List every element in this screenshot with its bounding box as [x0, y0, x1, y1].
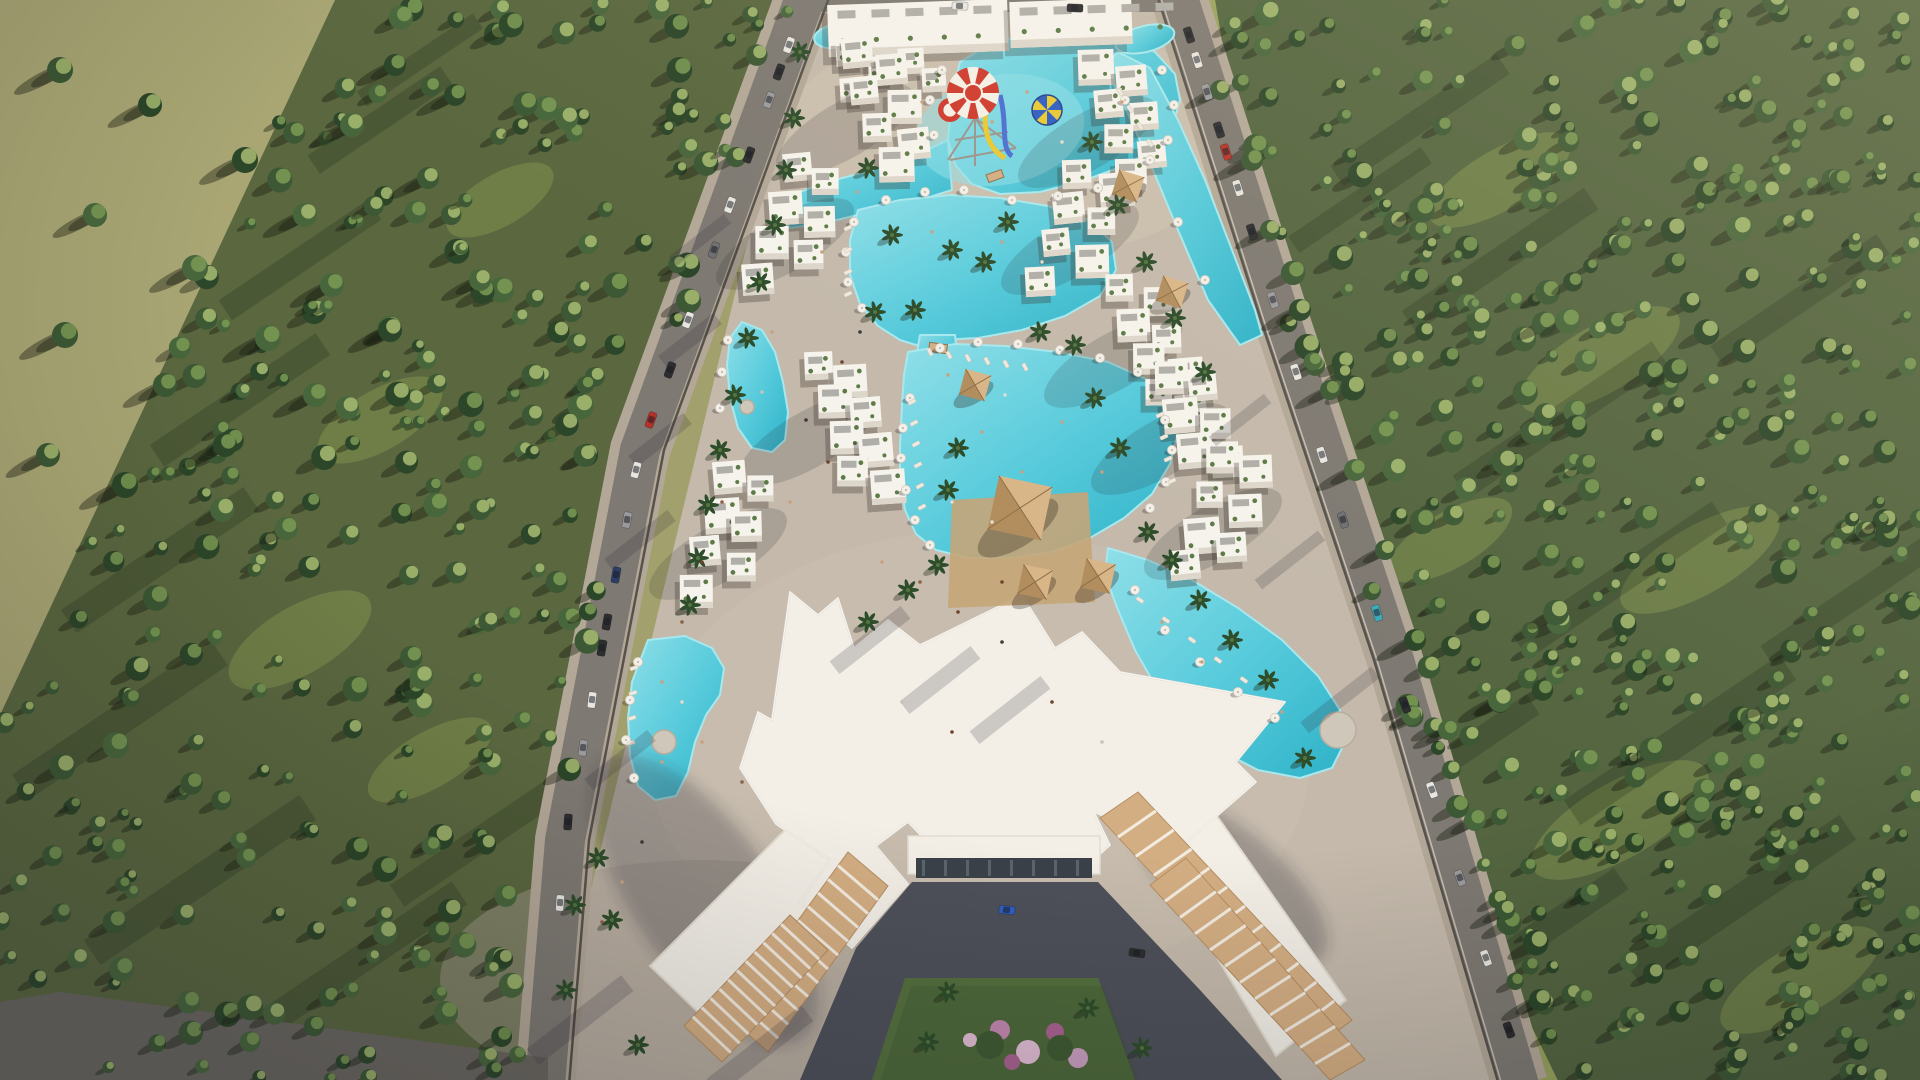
resort-aerial-render [0, 0, 1920, 1080]
light-overlays [0, 0, 1920, 1080]
scene-svg [0, 0, 1920, 1080]
